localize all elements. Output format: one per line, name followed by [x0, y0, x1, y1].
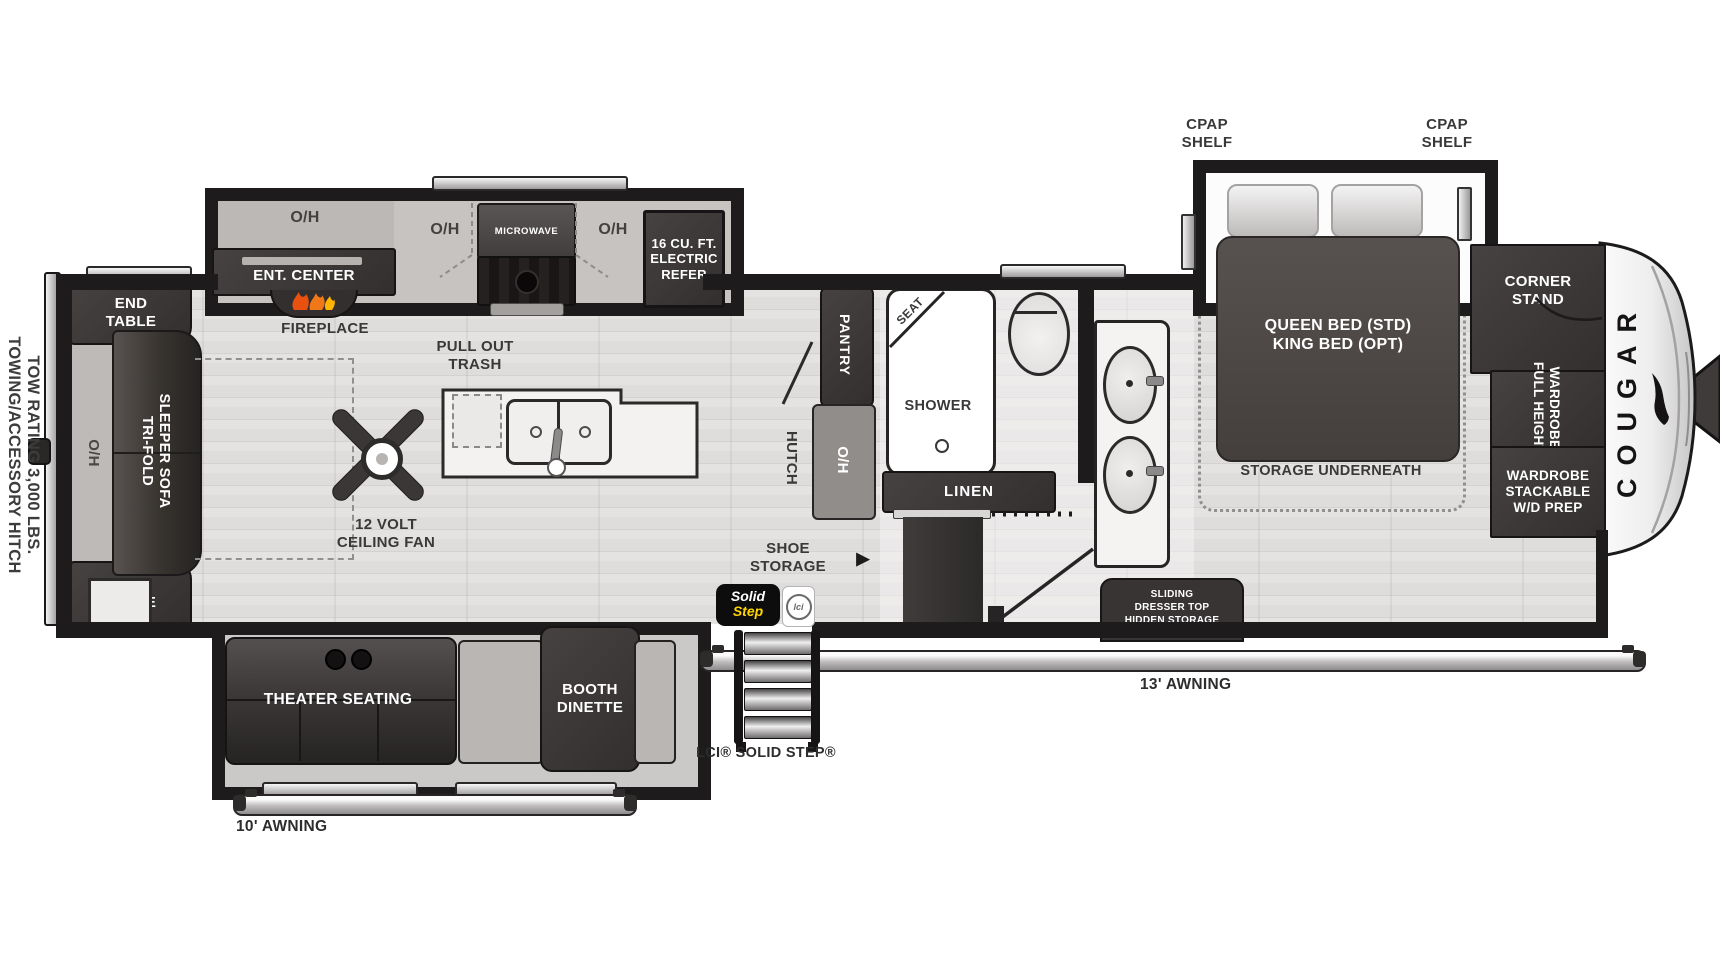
awning-nub — [613, 789, 625, 797]
step-tread — [744, 716, 812, 739]
awning-10ft-icon — [233, 794, 637, 816]
ent-center-label: ENT. CENTER — [214, 264, 394, 288]
bath-window-bar — [1000, 264, 1126, 279]
awning-10ft-label: 10' AWNING — [236, 818, 366, 836]
theater-seating-label: THEATER SEATING — [238, 690, 438, 710]
cupholder-icon — [325, 649, 346, 670]
awning-cap — [700, 651, 713, 667]
seat-divider — [377, 701, 379, 761]
wd-prep-wardrobe: WARDROBE STACKABLE W/D PREP — [1490, 446, 1606, 538]
cupholder-icon — [351, 649, 372, 670]
towing-line1: TOWING/ACCESSORY HITCH — [4, 336, 23, 573]
sink-faucet-knob — [547, 458, 566, 477]
bedroom-door-post — [988, 606, 1004, 622]
ceiling-fan-icon — [317, 394, 437, 514]
cougar-silhouette-icon — [1649, 371, 1671, 427]
solid-step-word2: Step — [716, 604, 780, 619]
refrigerator: 16 CU. FT. ELECTRIC REFER — [643, 210, 725, 308]
kitchen-oh-left-label: O/H — [418, 220, 472, 240]
fan-label: 12 VOLT CEILING FAN — [318, 516, 454, 551]
solid-step-badge: Solid Step — [716, 584, 780, 626]
shower-label: SHOWER — [894, 398, 982, 416]
burner-icon — [515, 270, 539, 294]
towing-line2: TOW RATING 3,000 LBS. — [23, 355, 42, 554]
kitchen-oh-right-label: O/H — [586, 220, 640, 240]
rear-oh-label: O/H — [84, 423, 102, 483]
wall-rear — [56, 274, 72, 638]
booth-bench — [458, 640, 544, 764]
cpap-shelf-icon — [1181, 214, 1196, 270]
cpap-shelf-label-left: CPAP SHELF — [1158, 116, 1256, 151]
bath-bedroom-wall — [1078, 283, 1094, 483]
microwave: MICROWAVE — [477, 203, 576, 260]
flame-icon — [288, 290, 336, 312]
hutch-text: HUTCH — [782, 431, 800, 485]
vanity-drain-icon — [1126, 470, 1133, 477]
linen-label: LINEN — [944, 483, 994, 501]
awning-13ft-icon — [700, 650, 1646, 672]
vanity-faucet-icon — [1146, 376, 1164, 386]
hutch-oh-text: O/H — [833, 446, 851, 474]
rv-floorplan: O/H END TABLE END TABLE TRI-FOLD SLEEPER… — [0, 0, 1720, 968]
trash-label: PULL OUT TRASH — [418, 338, 532, 373]
entertainment-center: ENT. CENTER — [212, 248, 396, 296]
wd-prep-label: WARDROBE STACKABLE W/D PREP — [1506, 468, 1591, 517]
lci-badge: lci — [782, 586, 815, 627]
linen-closet: LINEN — [882, 471, 1056, 513]
fan-hub-dot — [376, 453, 388, 465]
sofa-label-line2: SLEEPER SOFA — [155, 394, 172, 509]
booth-dinette-table: BOOTH DINETTE — [540, 626, 640, 772]
pantry-label: PANTRY — [837, 295, 853, 395]
wall-bottom-rear — [56, 622, 218, 638]
toilet-icon — [1008, 292, 1070, 376]
corner-stand-label: CORNER STAND — [1505, 273, 1572, 309]
wardrobe-line1: FULL HEIGHT — [1530, 362, 1546, 454]
toilet-tank-line — [1015, 311, 1057, 314]
entry-steps-icon — [734, 628, 820, 754]
fan-hub — [361, 438, 403, 480]
lci-logo-icon: lci — [786, 594, 812, 620]
wall-bottom-front — [812, 622, 1604, 638]
awning-cap — [1633, 651, 1646, 667]
shoe-storage-label: SHOE STORAGE — [726, 540, 850, 575]
solid-step-label: LCI® SOLID STEP® — [664, 744, 868, 764]
booth-dinette-label: BOOTH DINETTE — [557, 681, 623, 717]
hutch-oh-label: O/H — [834, 435, 850, 485]
fireplace-label: FIREPLACE — [262, 320, 388, 338]
lci-logo-text: lci — [793, 602, 803, 612]
awning-nub — [712, 645, 724, 653]
step-tread — [744, 688, 812, 711]
stove-icon — [477, 256, 576, 306]
awning-cap — [624, 795, 637, 811]
wardrobe-line2: WARDROBE — [1546, 367, 1562, 450]
rear-oh-text: O/H — [84, 439, 102, 467]
cpap-shelf-icon — [1457, 187, 1472, 241]
cpap-shelf-label-right: CPAP SHELF — [1398, 116, 1496, 151]
step-tread — [744, 632, 812, 655]
vanity-drain-icon — [1126, 380, 1133, 387]
sofa-label: TRI-FOLD SLEEPER SOFA — [136, 376, 174, 526]
microwave-label: MICROWAVE — [495, 226, 558, 237]
awning-nub — [1622, 645, 1634, 653]
entry-wall-column — [903, 517, 983, 624]
storage-underneath-label: STORAGE UNDERNEATH — [1218, 462, 1444, 482]
hutch-label: HUTCH — [783, 413, 799, 503]
wall-top-rear — [56, 274, 218, 290]
seat-divider — [299, 701, 301, 761]
end-table-top-label: END TABLE — [106, 295, 156, 331]
step-tread — [744, 660, 812, 683]
ent-center-oh-label: O/H — [275, 208, 335, 228]
brand-logo-text: COUGAR — [1612, 300, 1642, 498]
awning-cap — [233, 795, 246, 811]
awning-nub — [245, 789, 257, 797]
pull-out-trash — [452, 394, 502, 448]
bed-mattress: QUEEN BED (STD) KING BED (OPT) — [1216, 236, 1460, 462]
solid-step-word1: Solid — [716, 589, 780, 604]
sink-drain-icon — [579, 426, 591, 438]
sink-drain-icon — [530, 426, 542, 438]
kitchen-slide-topper — [432, 176, 628, 191]
sofa-label-line1: TRI-FOLD — [138, 416, 155, 486]
step-rail — [811, 630, 820, 744]
shower-drain-icon — [935, 439, 949, 453]
towing-label: TOWING/ACCESSORY HITCH TOW RATING 3,000 … — [2, 265, 44, 645]
vanity-faucet-icon — [1146, 466, 1164, 476]
shoe-storage-arrow-icon: ▶ — [852, 549, 874, 569]
bed-pillow — [1331, 184, 1423, 238]
bed-label: QUEEN BED (STD) KING BED (OPT) — [1265, 316, 1412, 354]
pantry-text: PANTRY — [837, 314, 854, 376]
awning-13ft-label: 13' AWNING — [1140, 676, 1260, 694]
bed-pillow — [1227, 184, 1319, 238]
utility-box — [88, 578, 152, 628]
stove-knob-tray — [490, 303, 564, 316]
brand-label-wrap: COUGAR — [1612, 249, 1648, 549]
step-rail — [734, 630, 743, 744]
